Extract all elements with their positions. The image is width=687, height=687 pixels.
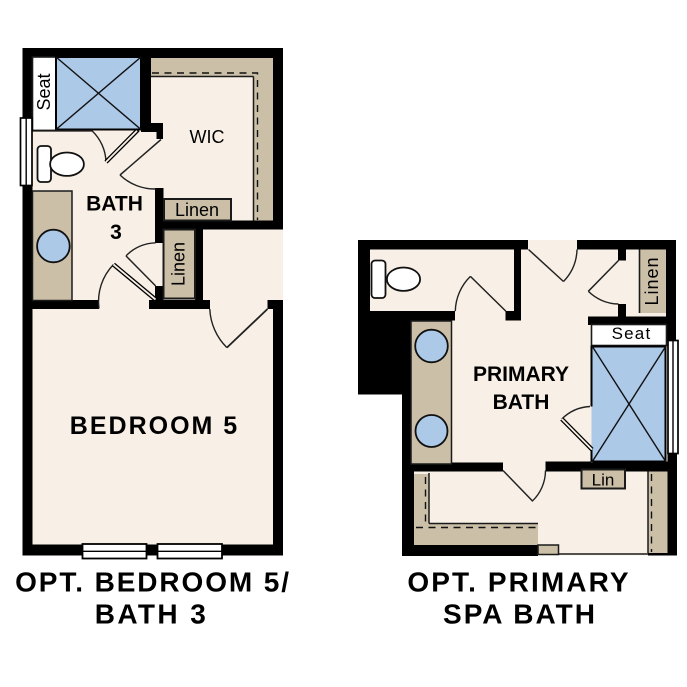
svg-text:BATH: BATH: [86, 193, 143, 216]
svg-text:Linen: Linen: [169, 242, 189, 286]
svg-text:3: 3: [110, 221, 122, 244]
svg-text:Lin: Lin: [592, 471, 615, 490]
svg-text:BATH 3: BATH 3: [95, 599, 208, 630]
svg-text:WIC: WIC: [190, 127, 225, 147]
svg-text:SPA BATH: SPA BATH: [443, 599, 597, 630]
svg-text:BEDROOM 5: BEDROOM 5: [70, 412, 239, 440]
svg-text:Linen: Linen: [175, 200, 219, 220]
svg-text:PRIMARY: PRIMARY: [473, 363, 569, 386]
svg-text:BATH: BATH: [493, 391, 550, 414]
svg-text:Seat: Seat: [34, 73, 54, 110]
svg-text:OPT. BEDROOM 5/: OPT. BEDROOM 5/: [15, 567, 291, 598]
svg-text:OPT. PRIMARY: OPT. PRIMARY: [407, 567, 630, 598]
svg-text:Linen: Linen: [642, 256, 662, 305]
svg-text:Seat: Seat: [612, 324, 652, 343]
